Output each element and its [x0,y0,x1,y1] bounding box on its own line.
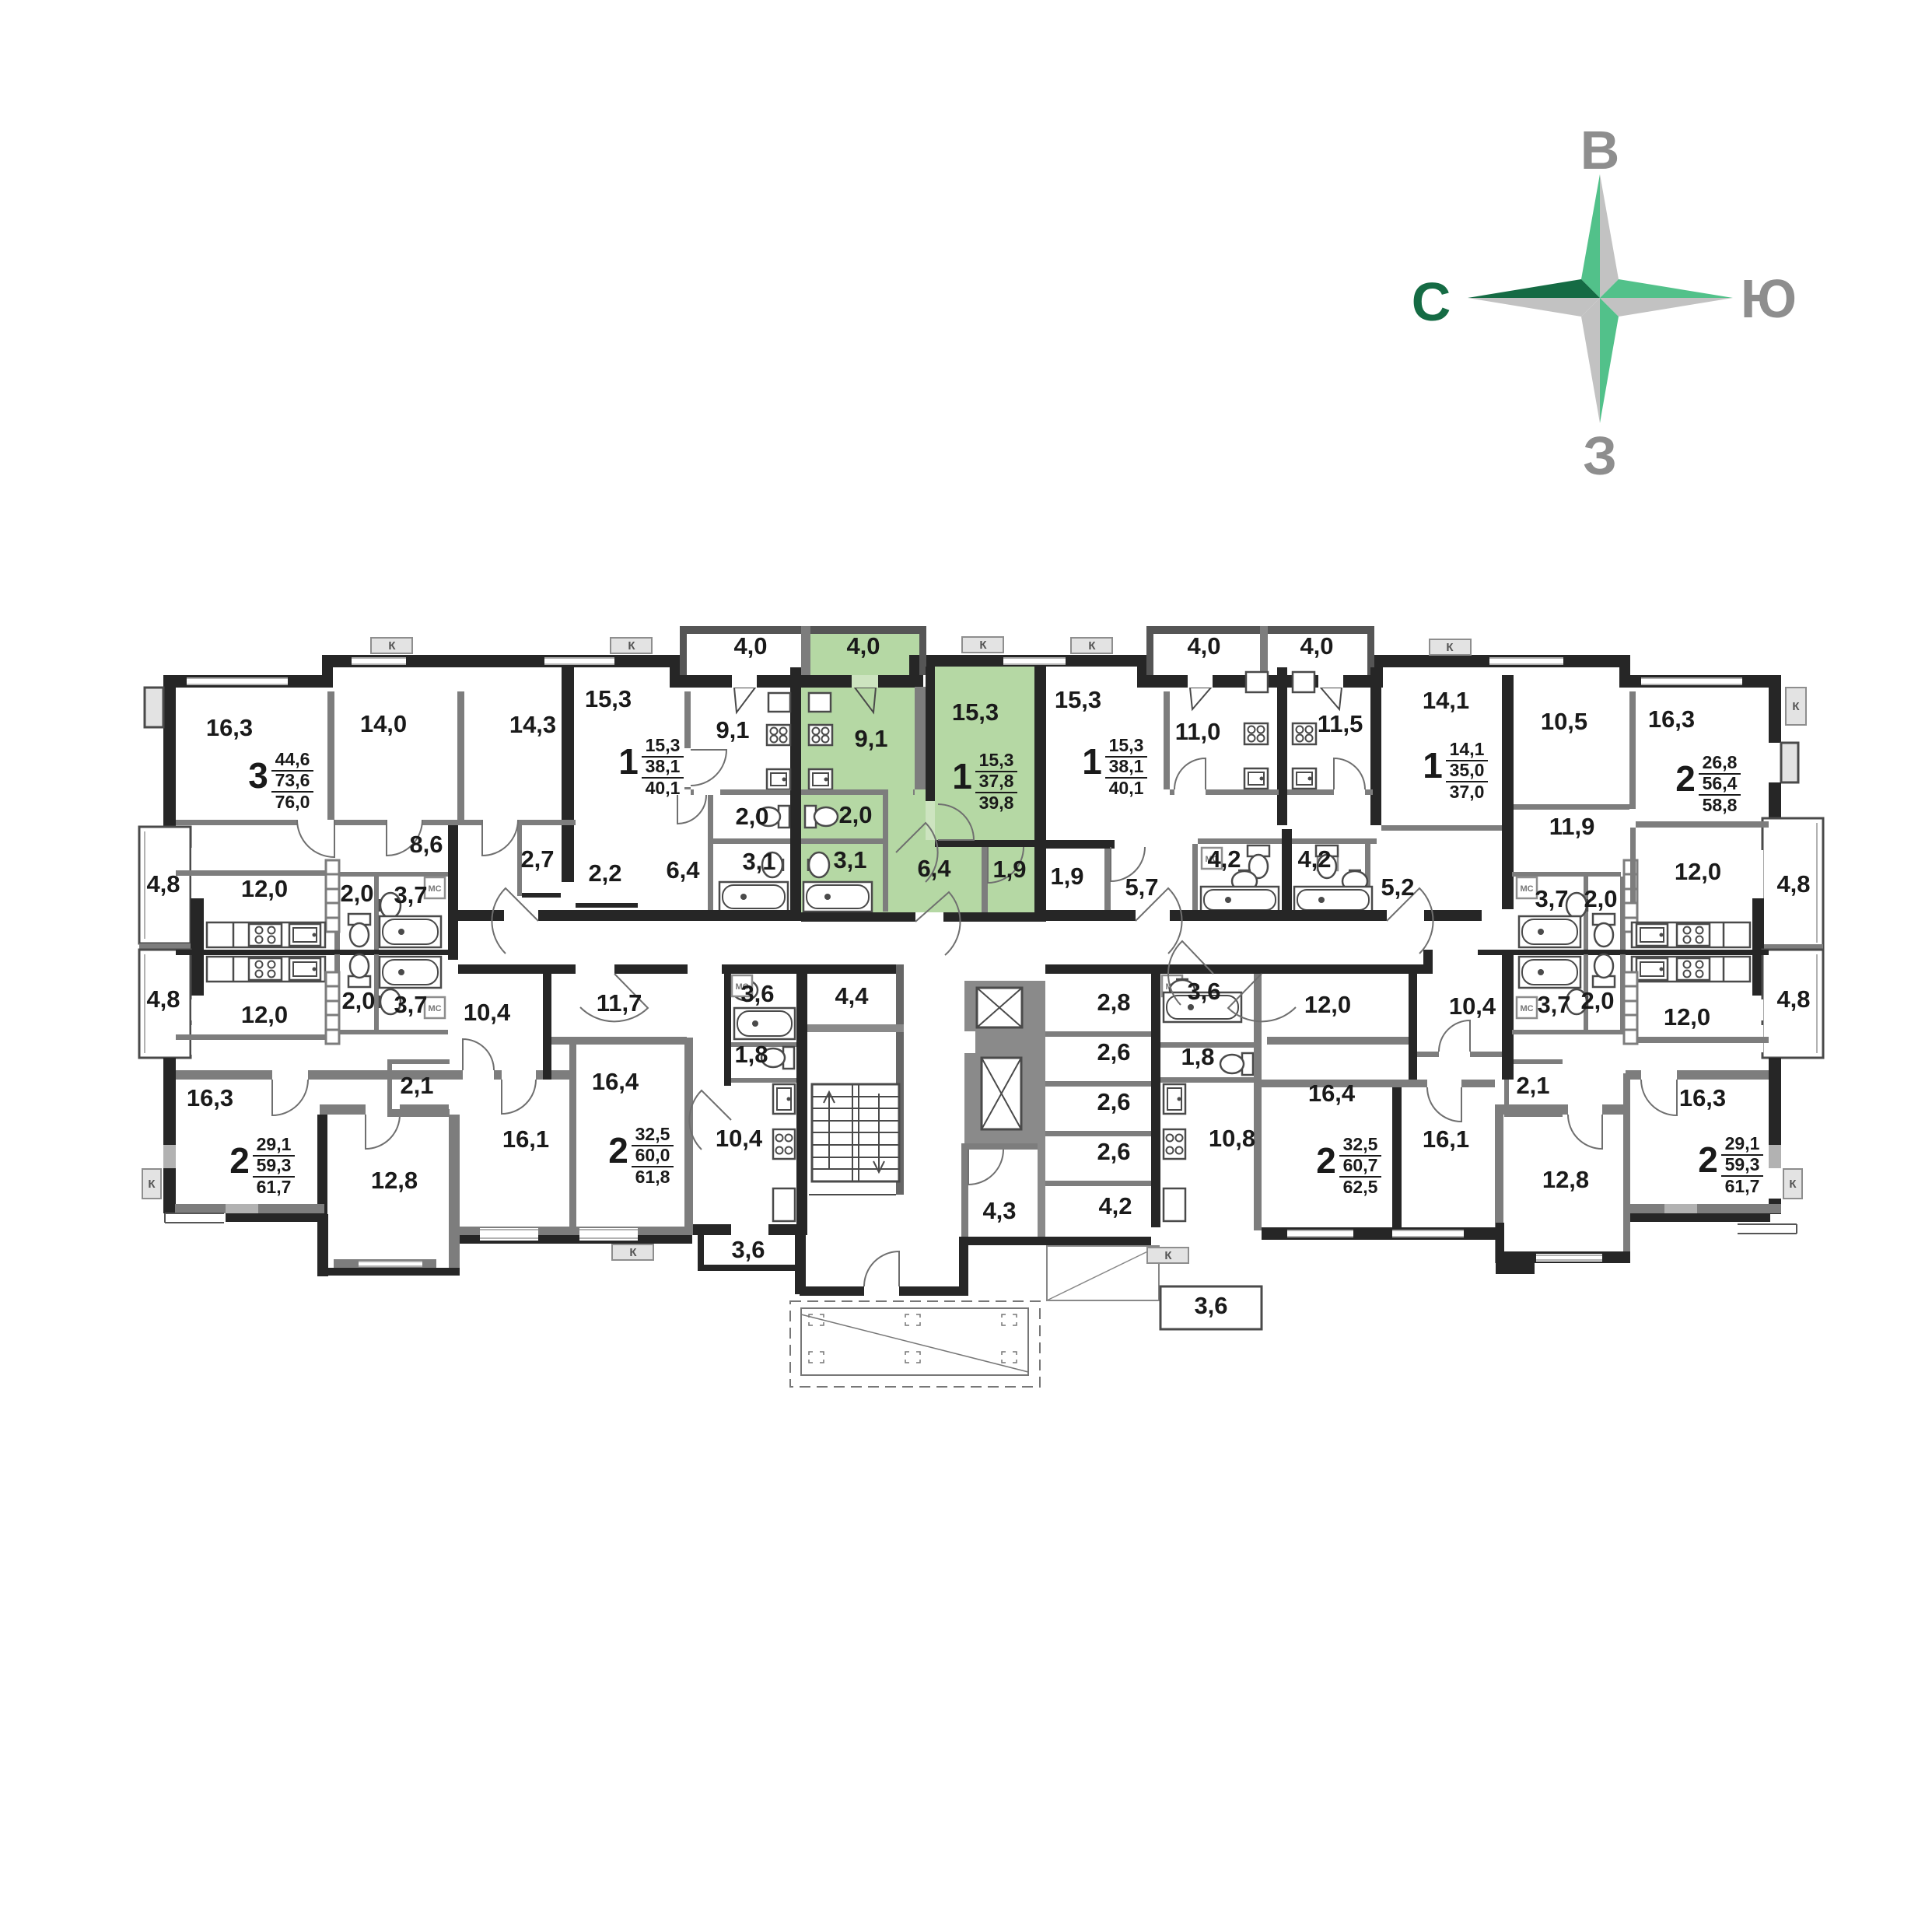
svg-text:37,8: 37,8 [979,771,1014,791]
svg-text:61,8: 61,8 [635,1167,670,1187]
svg-text:2,8: 2,8 [1097,989,1130,1016]
svg-text:Ю: Ю [1741,268,1797,329]
svg-text:6,4: 6,4 [666,856,700,884]
svg-text:МС: МС [428,1004,441,1013]
svg-text:12,0: 12,0 [1675,858,1721,885]
svg-text:62,5: 62,5 [1343,1177,1378,1197]
svg-text:29,1: 29,1 [257,1134,292,1154]
svg-text:2: 2 [1316,1140,1336,1181]
svg-text:4,0: 4,0 [1187,632,1220,660]
svg-text:59,3: 59,3 [257,1155,292,1175]
svg-text:38,1: 38,1 [646,756,681,776]
svg-text:12,0: 12,0 [241,875,288,902]
svg-text:3,7: 3,7 [1535,885,1568,912]
svg-text:2,0: 2,0 [1580,987,1614,1014]
svg-text:10,4: 10,4 [464,999,511,1026]
svg-text:3,1: 3,1 [833,846,866,873]
svg-text:59,3: 59,3 [1725,1154,1760,1174]
svg-text:16,3: 16,3 [187,1084,233,1111]
svg-text:10,4: 10,4 [1449,992,1496,1020]
svg-text:4,2: 4,2 [1297,845,1331,873]
svg-text:37,0: 37,0 [1450,782,1485,802]
svg-text:58,8: 58,8 [1703,795,1738,815]
svg-text:2,6: 2,6 [1097,1138,1130,1165]
svg-text:12,0: 12,0 [241,1001,288,1028]
svg-text:4,4: 4,4 [835,982,869,1010]
svg-text:9,1: 9,1 [854,725,887,752]
svg-text:10,5: 10,5 [1541,708,1587,735]
svg-text:32,5: 32,5 [635,1124,670,1144]
svg-text:2,0: 2,0 [735,803,768,830]
svg-text:1: 1 [1082,741,1102,782]
svg-text:61,7: 61,7 [257,1177,292,1197]
svg-text:11,0: 11,0 [1175,718,1221,745]
svg-text:4,8: 4,8 [146,985,180,1013]
svg-text:4,2: 4,2 [1207,845,1241,873]
svg-text:3,7: 3,7 [394,991,427,1018]
svg-text:60,7: 60,7 [1343,1155,1378,1175]
svg-text:16,3: 16,3 [206,714,253,741]
svg-text:2,0: 2,0 [341,987,375,1014]
svg-text:16,4: 16,4 [592,1068,639,1095]
svg-text:2: 2 [1698,1139,1718,1180]
svg-text:3,1: 3,1 [742,848,775,875]
svg-text:К: К [1446,641,1454,654]
svg-text:К: К [628,639,635,653]
svg-text:15,3: 15,3 [979,750,1014,770]
svg-text:11,7: 11,7 [597,989,642,1017]
svg-text:14,1: 14,1 [1423,687,1469,714]
svg-text:4,8: 4,8 [146,870,180,898]
svg-text:15,3: 15,3 [952,698,999,726]
svg-text:3,7: 3,7 [394,881,427,908]
svg-text:МС: МС [1520,884,1533,894]
svg-text:1: 1 [1423,745,1443,786]
svg-text:38,1: 38,1 [1109,756,1144,776]
svg-text:15,3: 15,3 [585,685,632,712]
svg-text:К: К [1088,639,1096,653]
svg-text:4,0: 4,0 [846,632,880,660]
svg-text:15,3: 15,3 [1055,686,1101,713]
svg-text:С: С [1412,271,1451,332]
svg-text:40,1: 40,1 [646,778,681,798]
svg-text:44,6: 44,6 [275,749,310,769]
svg-text:9,1: 9,1 [716,716,749,744]
svg-text:5,2: 5,2 [1381,873,1414,901]
svg-text:К: К [1164,1249,1172,1262]
svg-text:16,1: 16,1 [1423,1125,1469,1153]
svg-text:6,4: 6,4 [917,855,951,882]
svg-text:1,9: 1,9 [1050,863,1083,890]
svg-text:4,8: 4,8 [1776,985,1810,1013]
svg-text:4,8: 4,8 [1776,870,1810,898]
svg-text:2,6: 2,6 [1097,1088,1130,1115]
svg-text:3,6: 3,6 [1187,978,1220,1005]
svg-text:10,8: 10,8 [1209,1125,1255,1152]
svg-text:3,6: 3,6 [1194,1292,1227,1319]
svg-text:16,1: 16,1 [502,1125,549,1153]
svg-text:12,0: 12,0 [1664,1003,1710,1031]
svg-text:14,0: 14,0 [360,710,407,737]
svg-text:61,7: 61,7 [1725,1176,1760,1196]
svg-text:76,0: 76,0 [275,792,310,812]
svg-text:К: К [979,639,987,652]
svg-text:35,0: 35,0 [1450,760,1485,780]
svg-text:МС: МС [1520,1004,1533,1013]
svg-text:5,7: 5,7 [1125,873,1158,901]
svg-text:12,0: 12,0 [1304,991,1351,1018]
svg-text:12,8: 12,8 [371,1167,418,1194]
svg-text:32,5: 32,5 [1343,1134,1378,1154]
svg-text:4,0: 4,0 [733,632,767,660]
svg-text:2,2: 2,2 [588,859,621,887]
svg-text:2,6: 2,6 [1097,1038,1130,1066]
svg-text:29,1: 29,1 [1725,1133,1760,1153]
svg-text:15,3: 15,3 [646,735,681,755]
svg-text:3,7: 3,7 [1537,991,1570,1018]
svg-text:4,2: 4,2 [1098,1192,1132,1220]
svg-text:15,3: 15,3 [1109,735,1144,755]
svg-text:12,8: 12,8 [1542,1166,1589,1193]
svg-text:40,1: 40,1 [1109,778,1144,798]
svg-text:2: 2 [608,1130,628,1171]
svg-text:2,0: 2,0 [1584,885,1617,912]
svg-text:К: К [1792,700,1800,713]
svg-text:3,6: 3,6 [731,1236,765,1263]
svg-text:К: К [629,1246,637,1259]
svg-text:МС: МС [428,884,441,894]
svg-text:2,0: 2,0 [838,801,872,828]
svg-text:К: К [388,639,396,653]
svg-text:16,3: 16,3 [1679,1084,1726,1111]
svg-text:1,8: 1,8 [1181,1043,1214,1070]
svg-text:39,8: 39,8 [979,793,1014,813]
svg-text:2,1: 2,1 [1516,1072,1549,1099]
svg-text:11,5: 11,5 [1318,710,1363,737]
svg-text:56,4: 56,4 [1703,773,1738,793]
svg-text:1,8: 1,8 [734,1041,768,1068]
svg-text:8,6: 8,6 [409,831,443,858]
svg-text:З: З [1583,425,1617,486]
svg-text:11,9: 11,9 [1549,813,1595,840]
svg-text:2: 2 [1675,758,1696,799]
svg-text:73,6: 73,6 [275,770,310,790]
svg-text:2,0: 2,0 [340,880,373,907]
svg-text:4,3: 4,3 [982,1197,1016,1224]
svg-text:26,8: 26,8 [1703,752,1738,772]
svg-text:14,3: 14,3 [509,711,556,738]
svg-text:16,4: 16,4 [1308,1080,1356,1107]
svg-text:В: В [1580,120,1620,180]
svg-text:2,1: 2,1 [400,1072,433,1099]
svg-text:3: 3 [248,755,268,796]
svg-text:10,4: 10,4 [716,1125,763,1152]
svg-text:16,3: 16,3 [1648,705,1695,733]
svg-text:2,7: 2,7 [520,845,554,873]
svg-text:2: 2 [229,1140,250,1181]
svg-text:К: К [148,1178,156,1191]
svg-text:14,1: 14,1 [1450,739,1485,759]
svg-text:1,9: 1,9 [992,856,1026,883]
svg-text:4,0: 4,0 [1300,632,1333,660]
svg-text:1: 1 [952,756,972,796]
svg-text:3,6: 3,6 [740,980,774,1007]
svg-text:60,0: 60,0 [635,1145,670,1165]
svg-text:1: 1 [618,741,639,782]
svg-text:К: К [1789,1178,1797,1191]
